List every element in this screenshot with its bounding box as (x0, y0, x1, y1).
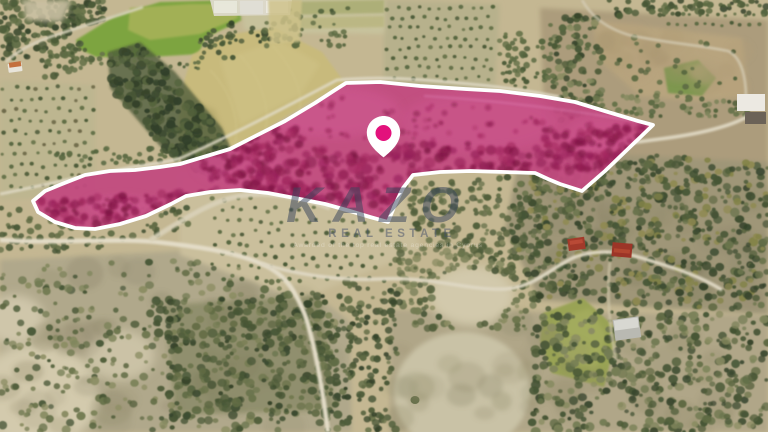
svg-text:KAZO: KAZO (286, 177, 470, 233)
svg-text:REAL ESTATE: REAL ESTATE (328, 228, 455, 240)
svg-text:Awarded of the top real estate: Awarded of the top real estate agencies … (293, 242, 482, 249)
